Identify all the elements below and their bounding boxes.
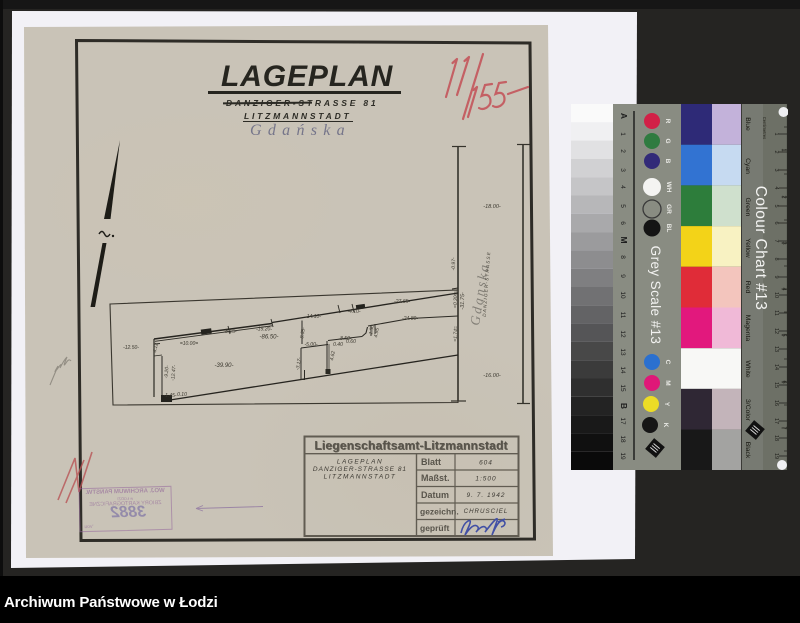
- svg-text:6: 6: [619, 221, 626, 225]
- svg-text:K: K: [662, 423, 669, 428]
- svg-text:10: 10: [619, 291, 626, 299]
- svg-text:-9.20-: -9.20-: [163, 365, 170, 379]
- svg-text:-31.75-: -31.75-: [460, 292, 467, 310]
- svg-text:-12.50-: -12.50-: [123, 345, 139, 351]
- svg-text:4.12: 4.12: [152, 342, 160, 353]
- svg-text:2: 2: [619, 149, 626, 153]
- svg-text:BL: BL: [665, 224, 672, 233]
- svg-text:4: 4: [619, 185, 626, 189]
- svg-text:=0.300=: =0.300=: [453, 290, 460, 309]
- svg-text:gezeichn.: gezeichn.: [420, 507, 459, 517]
- svg-text:0.40: 0.40: [333, 342, 343, 348]
- svg-text:5: 5: [619, 204, 626, 208]
- svg-text:G: G: [664, 138, 671, 143]
- svg-text:-12.47-: -12.47-: [170, 364, 177, 381]
- svg-text:0.10: 0.10: [177, 392, 187, 398]
- svg-text:Red: Red: [744, 281, 751, 294]
- svg-text:Cyan: Cyan: [744, 158, 751, 174]
- svg-text:M: M: [664, 380, 671, 385]
- svg-text:0.60: 0.60: [346, 339, 356, 345]
- svg-text:-19.20-: -19.20-: [256, 327, 272, 333]
- svg-text:-16.00-: -16.00-: [483, 373, 501, 379]
- svg-text:-14.10-: -14.10-: [305, 314, 321, 320]
- svg-text:1: 1: [773, 132, 779, 135]
- svg-text:DANZIGER-STRASSE: DANZIGER-STRASSE: [482, 251, 492, 317]
- svg-text:Grey Scale #13: Grey Scale #13: [648, 246, 663, 345]
- svg-text:17: 17: [773, 418, 779, 424]
- svg-text:-24.80-: -24.80-: [402, 316, 418, 322]
- svg-text:4: 4: [781, 287, 787, 290]
- svg-text:14: 14: [773, 364, 779, 370]
- svg-text:=10.00=: =10.00=: [180, 341, 198, 347]
- svg-text:2: 2: [773, 150, 779, 153]
- svg-text:4: 4: [773, 186, 779, 189]
- svg-text:3: 3: [773, 168, 779, 171]
- svg-text:10: 10: [773, 292, 779, 298]
- svg-text:White: White: [744, 360, 751, 378]
- svg-text:17: 17: [619, 417, 626, 425]
- svg-text:8: 8: [619, 255, 626, 259]
- svg-text:-1.45-: -1.45-: [163, 393, 176, 399]
- svg-text:-4.10-: -4.10-: [347, 309, 360, 315]
- svg-text:Liegenschaftsamt-Litzmannstadt: Liegenschaftsamt-Litzmannstadt: [314, 439, 507, 453]
- svg-text:4.95: 4.95: [373, 327, 381, 338]
- svg-text:-3.17-: -3.17-: [295, 357, 303, 371]
- svg-text:-8.15-: -8.15-: [223, 329, 236, 335]
- svg-text:9: 9: [619, 274, 626, 278]
- svg-text:18: 18: [773, 435, 779, 441]
- svg-text:1: 1: [619, 132, 626, 136]
- svg-text:Colour Chart #13: Colour Chart #13: [752, 186, 769, 310]
- svg-text:=1.74=: =1.74=: [453, 326, 460, 342]
- svg-text:C: C: [664, 360, 671, 365]
- svg-text:-27.65-: -27.65-: [394, 299, 410, 305]
- svg-text:2: 2: [781, 195, 787, 198]
- svg-text:6: 6: [781, 380, 787, 383]
- svg-text:DANZIGER-STRASSE 81: DANZIGER-STRASSE 81: [313, 466, 407, 473]
- svg-text:-8.65-: -8.65-: [299, 327, 307, 341]
- svg-text:Yellow: Yellow: [744, 238, 751, 257]
- svg-text:9. 7. 1942: 9. 7. 1942: [467, 492, 506, 499]
- svg-text:geprüft: geprüft: [420, 523, 449, 533]
- svg-text:LITZMANNSTADT: LITZMANNSTADT: [324, 474, 397, 481]
- svg-text:Black: Black: [744, 442, 751, 459]
- svg-text:15: 15: [773, 382, 779, 388]
- svg-text:15: 15: [619, 384, 626, 392]
- svg-text:8: 8: [773, 257, 779, 260]
- svg-text:R: R: [664, 119, 671, 124]
- svg-text:11: 11: [773, 310, 779, 316]
- svg-text:18: 18: [619, 435, 626, 443]
- svg-text:B: B: [619, 403, 629, 409]
- svg-text:16: 16: [773, 400, 779, 406]
- svg-text:-0.97-: -0.97-: [451, 257, 457, 271]
- svg-text:M: M: [619, 236, 629, 243]
- svg-text:19: 19: [619, 452, 626, 460]
- svg-text:13: 13: [773, 346, 779, 352]
- svg-text:LAGEPLAN: LAGEPLAN: [337, 459, 383, 466]
- svg-text:Blatt: Blatt: [421, 457, 441, 467]
- svg-text:-5.00-: -5.00-: [304, 342, 317, 348]
- svg-text:12: 12: [619, 330, 626, 338]
- svg-text:B: B: [664, 159, 671, 164]
- svg-text:WH: WH: [665, 182, 672, 193]
- svg-text:13: 13: [619, 348, 626, 356]
- svg-text:Magenta: Magenta: [744, 315, 751, 342]
- svg-text:19: 19: [773, 453, 779, 459]
- svg-text:12: 12: [773, 328, 779, 334]
- svg-text:-18.00-: -18.00-: [483, 204, 501, 210]
- svg-text:9: 9: [773, 275, 779, 278]
- svg-text:7: 7: [781, 426, 787, 429]
- svg-text:-86.50-: -86.50-: [259, 335, 278, 341]
- svg-text:1: 1: [781, 148, 787, 151]
- svg-text:604: 604: [479, 460, 493, 467]
- svg-text:3/Color: 3/Color: [744, 399, 751, 422]
- svg-text:Blue: Blue: [744, 117, 751, 131]
- svg-text:14: 14: [619, 366, 626, 374]
- svg-text:3: 3: [619, 168, 626, 172]
- svg-text:Datum: Datum: [421, 490, 449, 500]
- svg-text:5: 5: [781, 333, 787, 336]
- svg-text:Y: Y: [663, 402, 670, 407]
- svg-text:11: 11: [619, 312, 626, 319]
- svg-text:6: 6: [773, 221, 779, 224]
- svg-text:-39.90-: -39.90-: [214, 363, 233, 369]
- svg-text:4.62: 4.62: [329, 350, 337, 361]
- svg-text:A: A: [619, 113, 629, 119]
- svg-text:1:500: 1:500: [475, 476, 496, 483]
- svg-text:5: 5: [773, 204, 779, 207]
- svg-text:GR: GR: [665, 204, 672, 214]
- svg-text:Green: Green: [744, 198, 751, 217]
- svg-text:Centimetres: Centimetres: [762, 117, 767, 140]
- svg-text:CHRUSCIEL: CHRUSCIEL: [464, 508, 509, 515]
- svg-text:3: 3: [781, 241, 787, 244]
- svg-text:7: 7: [773, 239, 779, 242]
- svg-text:Maßst.: Maßst.: [421, 473, 450, 483]
